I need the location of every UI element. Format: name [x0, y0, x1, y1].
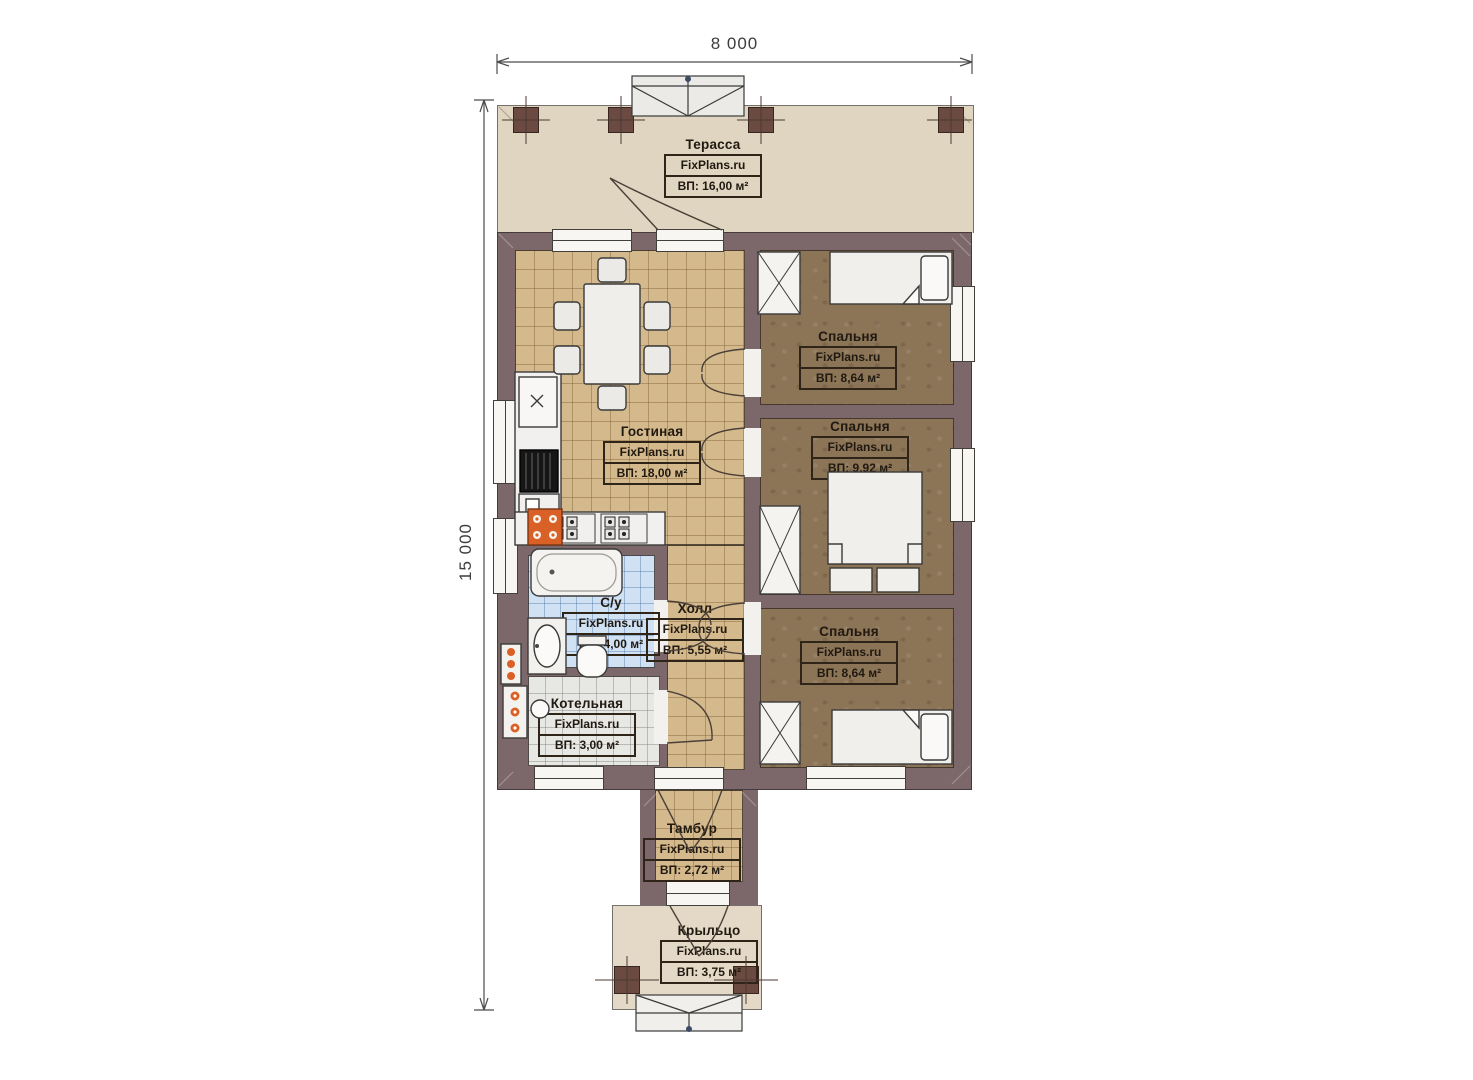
room-info-box: FixPlans.ru ВП: 8,64 м²: [800, 641, 898, 685]
room-label-hall: Холл FixPlans.ru ВП: 5,55 м²: [639, 601, 751, 662]
room-label-living-room: Гостиная FixPlans.ru ВП: 18,00 м²: [596, 424, 708, 485]
room-label-bedroom-middle: Спальня FixPlans.ru ВП: 9,92 м²: [804, 419, 916, 480]
room-label-bedroom-bottom: Спальня FixPlans.ru ВП: 8,64 м²: [793, 624, 905, 685]
room-name: Тамбур: [636, 821, 748, 836]
door-gap-bedroom-middle: [744, 428, 761, 477]
dimension-width-label: 8 000: [497, 34, 972, 54]
room-label-bedroom-top: Спальня FixPlans.ru ВП: 8,64 м²: [792, 329, 904, 390]
brand-text: FixPlans.ru: [666, 156, 760, 175]
brand-text: FixPlans.ru: [645, 840, 739, 859]
area-text: ВП: 5,55 м²: [648, 639, 742, 660]
room-label-boiler-room: Котельная FixPlans.ru ВП: 3,00 м²: [531, 696, 643, 757]
area-text: ВП: 9,92 м²: [813, 457, 907, 478]
terrace-column: [513, 107, 539, 133]
brand-text: FixPlans.ru: [801, 348, 895, 367]
dimension-height-label: 15 000: [456, 482, 476, 622]
area-text: ВП: 16,00 м²: [666, 175, 760, 196]
brand-text: FixPlans.ru: [648, 620, 742, 639]
window-bedroom-middle-right: [950, 448, 975, 522]
room-info-box: FixPlans.ru ВП: 9,92 м²: [811, 436, 909, 480]
brand-text: FixPlans.ru: [813, 438, 907, 457]
terrace-column: [938, 107, 964, 133]
porch-column: [614, 966, 640, 994]
brand-text: FixPlans.ru: [662, 942, 756, 961]
room-label-porch: Крыльцо FixPlans.ru ВП: 3,75 м²: [653, 923, 765, 984]
room-name: Спальня: [793, 624, 905, 639]
porch-door-opening: [666, 881, 730, 906]
window-living-top: [552, 229, 632, 252]
room-label-vestibule: Тамбур FixPlans.ru ВП: 2,72 м²: [636, 821, 748, 882]
room-info-box: FixPlans.ru ВП: 5,55 м²: [646, 618, 744, 662]
area-text: ВП: 18,00 м²: [605, 462, 699, 483]
window-kitchen-left: [493, 400, 518, 484]
room-info-box: FixPlans.ru ВП: 3,00 м²: [538, 713, 636, 757]
room-name: Спальня: [804, 419, 916, 434]
brand-text: FixPlans.ru: [802, 643, 896, 662]
room-info-box: FixPlans.ru ВП: 3,75 м²: [660, 940, 758, 984]
brand-text: FixPlans.ru: [540, 715, 634, 734]
window-boiler-bottom: [534, 766, 604, 790]
terrace-door-opening: [656, 229, 724, 252]
window-bedroom-top-right: [950, 286, 975, 362]
area-text: ВП: 3,00 м²: [540, 734, 634, 755]
room-info-box: FixPlans.ru ВП: 16,00 м²: [664, 154, 762, 198]
window-bathroom-left: [493, 518, 518, 594]
area-text: ВП: 3,75 м²: [662, 961, 756, 982]
room-name: Гостиная: [596, 424, 708, 439]
room-name: Крыльцо: [653, 923, 765, 938]
vestibule-door-opening: [654, 767, 724, 790]
area-text: ВП: 8,64 м²: [802, 662, 896, 683]
door-gap-bedroom-top: [744, 349, 761, 397]
room-label-terrace: Терасса FixPlans.ru ВП: 16,00 м²: [657, 137, 769, 198]
room-name: Котельная: [531, 696, 643, 711]
room-name: Холл: [639, 601, 751, 616]
door-gap-boiler: [654, 690, 668, 744]
area-text: ВП: 2,72 м²: [645, 859, 739, 880]
living-room-floor: [515, 250, 745, 545]
room-info-box: FixPlans.ru ВП: 8,64 м²: [799, 346, 897, 390]
room-info-box: FixPlans.ru ВП: 18,00 м²: [603, 441, 701, 485]
room-info-box: FixPlans.ru ВП: 2,72 м²: [643, 838, 741, 882]
terrace-column: [748, 107, 774, 133]
area-text: ВП: 8,64 м²: [801, 367, 895, 388]
brand-text: FixPlans.ru: [605, 443, 699, 462]
room-name: Терасса: [657, 137, 769, 152]
terrace-column: [608, 107, 634, 133]
room-name: Спальня: [792, 329, 904, 344]
window-bedroom-bottom: [806, 766, 906, 790]
floor-plan: 8 000 15 000 Терасса FixPlans.ru ВП: 16,…: [0, 0, 1473, 1080]
